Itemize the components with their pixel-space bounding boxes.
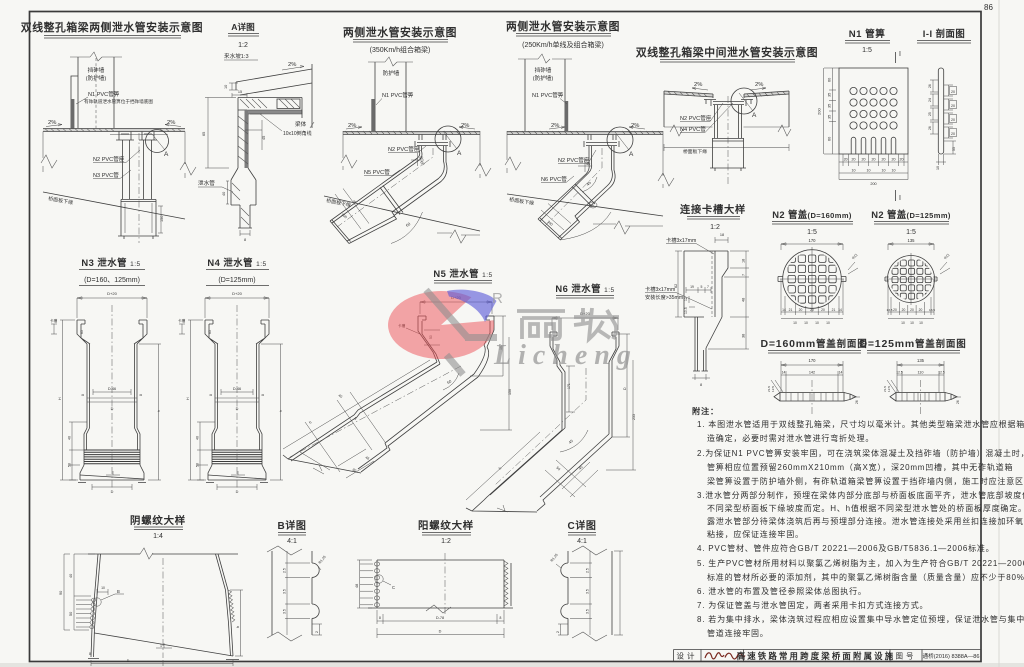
svg-text:40: 40: [68, 436, 72, 440]
svg-text:170: 170: [809, 358, 817, 363]
svg-text:管箅相应位置预留260mmX210mm（高X宽），深20mm: 管箅相应位置预留260mmX210mm（高X宽），深20mm凹槽，其中无砟轨道箱: [707, 462, 1013, 472]
svg-text:A: A: [457, 150, 462, 157]
svg-text:2: 2: [556, 631, 560, 633]
svg-text:卡槽: 卡槽: [50, 318, 58, 323]
svg-text:1:2: 1:2: [238, 42, 248, 49]
svg-text:13.5: 13.5: [886, 308, 892, 312]
svg-text:10: 10: [936, 166, 940, 170]
svg-text:D: D: [439, 630, 442, 634]
svg-text:90: 90: [59, 591, 63, 595]
svg-text:20: 20: [882, 158, 886, 162]
svg-text:1:2: 1:2: [710, 224, 720, 231]
svg-text:6. 泄水管的布置及管径参照梁体总图执行。: 6. 泄水管的布置及管径参照梁体总图执行。: [697, 586, 867, 596]
svg-text:3.5: 3.5: [586, 609, 590, 614]
svg-text:38: 38: [742, 334, 746, 338]
svg-text:8: 8: [244, 238, 246, 242]
svg-text:110: 110: [917, 371, 923, 375]
svg-text:N6 PVC管: N6 PVC管: [541, 175, 567, 183]
svg-text:N2 PVC管座: N2 PVC管座: [388, 145, 420, 153]
svg-text:21: 21: [832, 308, 836, 312]
svg-text:N2 管盖(D=125mm): N2 管盖(D=125mm): [871, 209, 951, 220]
svg-text:8. 若为集中排水，梁体浇筑过程应相应设置集中导水管定位预埋: 8. 若为集中排水，梁体浇筑过程应相应设置集中导水管定位预埋，保证泄水管与集中导…: [697, 614, 1024, 624]
svg-text:卡槽3x17mm: 卡槽3x17mm: [645, 285, 675, 293]
svg-text:D: D: [127, 659, 130, 663]
svg-text:8: 8: [89, 652, 91, 656]
svg-text:卡槽: 卡槽: [178, 318, 186, 323]
svg-text:135: 135: [908, 238, 916, 243]
svg-text:20: 20: [799, 308, 803, 312]
svg-text:10: 10: [901, 321, 905, 325]
svg-text:1:4: 1:4: [153, 533, 163, 540]
svg-text:(防护墙): (防护墙): [533, 74, 554, 82]
svg-text:20: 20: [910, 308, 914, 312]
svg-text:(D=160、125mm): (D=160、125mm): [84, 277, 140, 284]
svg-text:40: 40: [586, 162, 590, 166]
svg-text:13.5: 13.5: [929, 308, 935, 312]
svg-text:C详图: C详图: [567, 519, 596, 532]
svg-text:D: D: [236, 490, 239, 494]
svg-text:粘接，应保证连接牢固。: 粘接，应保证连接牢固。: [707, 529, 804, 539]
svg-text:40: 40: [69, 574, 73, 578]
svg-text:H: H: [58, 397, 62, 400]
svg-text:50: 50: [196, 463, 200, 467]
svg-text:(350Km/h组合箱梁): (350Km/h组合箱梁): [370, 45, 431, 54]
svg-text:D+20: D+20: [232, 291, 242, 296]
svg-text:21: 21: [789, 308, 793, 312]
svg-text:4:1: 4:1: [287, 538, 297, 545]
svg-text:142: 142: [809, 371, 815, 375]
svg-text:10: 10: [867, 169, 871, 173]
svg-text:2.为保证N1 PVC管箅安装牢固，可在浇筑梁体混凝土及挡砟: 2.为保证N1 PVC管箅安装牢固，可在浇筑梁体混凝土及挡砟墙（防护墙）混凝土时…: [697, 448, 1024, 458]
svg-text:2.5: 2.5: [283, 568, 287, 573]
svg-text:8: 8: [209, 394, 213, 396]
svg-text:20: 20: [902, 308, 906, 312]
svg-text:3.5: 3.5: [283, 589, 287, 594]
svg-text:D: D: [623, 387, 627, 390]
svg-text:10: 10: [882, 169, 886, 173]
svg-text:10.5: 10.5: [684, 307, 688, 314]
svg-text:40: 40: [196, 436, 200, 440]
svg-text:14: 14: [782, 371, 786, 375]
svg-text:19: 19: [690, 285, 694, 289]
svg-text:10: 10: [590, 204, 594, 208]
svg-text:150: 150: [508, 389, 512, 395]
svg-text:4:1: 4:1: [577, 538, 587, 545]
svg-text:(250Km/h单线及组合箱梁): (250Km/h单线及组合箱梁): [522, 40, 604, 49]
svg-text:A: A: [752, 112, 757, 119]
svg-text:10: 10: [826, 321, 830, 325]
svg-text:8: 8: [81, 394, 85, 396]
svg-text:A: A: [629, 151, 634, 158]
svg-text:8: 8: [139, 394, 143, 396]
svg-text:管道连接牢固。: 管道连接牢固。: [707, 628, 769, 638]
svg-text:20: 20: [951, 132, 955, 136]
svg-text:20: 20: [892, 158, 896, 162]
svg-text:B详图: B详图: [277, 519, 306, 532]
svg-text:N4 PVC管: N4 PVC管: [680, 125, 706, 133]
svg-text:65: 65: [208, 330, 212, 334]
svg-text:20: 20: [919, 308, 923, 312]
svg-text:20: 20: [951, 90, 955, 94]
svg-text:D=160mm管盖剖面图: D=160mm管盖剖面图: [760, 338, 867, 350]
svg-text:60: 60: [828, 78, 832, 82]
svg-text:48: 48: [355, 584, 359, 588]
svg-text:20: 20: [951, 104, 955, 108]
svg-text:N1 管箅: N1 管箅: [849, 28, 886, 40]
svg-text:2%: 2%: [48, 120, 56, 126]
svg-text:10: 10: [852, 169, 856, 173]
svg-text:26: 26: [855, 400, 859, 404]
svg-text:N1 PVC管箅: N1 PVC管箅: [532, 91, 564, 99]
svg-text:A详图: A详图: [231, 21, 255, 32]
svg-text:安装长度>35mm: 安装长度>35mm: [645, 293, 683, 301]
svg-text:露泄水管部分待梁体浇筑后再与预埋部分连接。泄水管连接处采用丝: 露泄水管部分待梁体浇筑后再与预埋部分连接。泄水管连接处采用丝扣连接加环氧树脂: [707, 516, 1024, 526]
svg-text:A: A: [164, 151, 169, 158]
svg-text:170: 170: [809, 238, 817, 243]
svg-text:I-I 剖面图: I-I 剖面图: [923, 28, 966, 39]
svg-text:R: R: [492, 290, 503, 307]
svg-text:B: B: [117, 589, 120, 594]
svg-text:65: 65: [80, 330, 84, 334]
svg-text:20: 20: [893, 308, 897, 312]
svg-text:55: 55: [952, 147, 956, 151]
svg-text:200: 200: [817, 108, 822, 115]
svg-text:50: 50: [69, 612, 73, 616]
svg-text:卡槽3x17mm: 卡槽3x17mm: [666, 236, 696, 244]
svg-text:10: 10: [224, 85, 228, 89]
svg-text:连接卡槽大样: 连接卡槽大样: [680, 203, 746, 216]
svg-text:2%: 2%: [288, 62, 296, 68]
svg-text:5: 5: [701, 285, 703, 289]
svg-text:两侧泄水管安装示意图: 两侧泄水管安装示意图: [506, 19, 620, 33]
svg-text:N2 PVC管座: N2 PVC管座: [93, 155, 125, 163]
svg-text:D+20: D+20: [107, 291, 117, 296]
svg-text:Licheng: Licheng: [493, 340, 638, 371]
svg-text:梁体: 梁体: [295, 120, 307, 128]
svg-text:桥面板下缘: 桥面板下缘: [683, 148, 707, 155]
svg-text:20: 20: [852, 158, 856, 162]
svg-text:50: 50: [68, 463, 72, 467]
svg-text:10: 10: [804, 321, 808, 325]
svg-text:20: 20: [810, 308, 814, 312]
svg-text:D: D: [111, 490, 114, 494]
svg-text:20: 20: [872, 158, 876, 162]
svg-text:N2 管盖(D=160mm): N2 管盖(D=160mm): [772, 209, 852, 220]
svg-text:8: 8: [700, 383, 702, 387]
svg-text:14: 14: [782, 308, 786, 312]
svg-text:10: 10: [910, 321, 914, 325]
svg-text:阴螺纹大样: 阴螺纹大样: [130, 514, 186, 527]
svg-text:D=125mm管盖剖面图: D=125mm管盖剖面图: [859, 338, 966, 350]
svg-text:12.5: 12.5: [771, 386, 775, 392]
svg-text:135: 135: [917, 358, 925, 363]
svg-text:通桥(2016) 8388A—86: 通桥(2016) 8388A—86: [923, 652, 980, 660]
svg-text:18: 18: [742, 259, 746, 263]
svg-text:12.5: 12.5: [896, 371, 902, 375]
svg-text:(D=125mm): (D=125mm): [218, 277, 255, 284]
svg-text:h: h: [157, 410, 161, 412]
svg-text:D-78: D-78: [436, 616, 444, 620]
svg-text:挡砟墙: 挡砟墙: [88, 66, 105, 74]
svg-text:20: 20: [821, 308, 825, 312]
svg-text:双线整孔箱梁两侧泄水管安装示意图: 双线整孔箱梁两侧泄水管安装示意图: [21, 20, 203, 34]
svg-text:附注：: 附注：: [692, 406, 719, 416]
svg-text:I: I: [899, 51, 901, 58]
svg-text:1:5: 1:5: [906, 229, 916, 236]
svg-text:15: 15: [238, 90, 242, 94]
svg-text:防护墙: 防护墙: [383, 69, 400, 77]
svg-text:7. 为保证管盖与泄水管固定，两者采用卡扣方式连接方式。: 7. 为保证管盖与泄水管固定，两者采用卡扣方式连接方式。: [697, 600, 928, 610]
svg-text:C: C: [392, 585, 395, 590]
svg-text:233: 233: [632, 414, 636, 420]
svg-text:H: H: [186, 397, 190, 400]
svg-text:10: 10: [793, 321, 797, 325]
svg-text:1:5: 1:5: [807, 229, 817, 236]
svg-text:3.泄水管分两部分制作，预埋在梁体内部分底部与桥面板底面平齐: 3.泄水管分两部分制作，预埋在梁体内部分底部与桥面板底面平齐，泄水管底部坡度依据: [697, 490, 1024, 500]
svg-text:N5 PVC管: N5 PVC管: [364, 168, 390, 176]
svg-text:10: 10: [101, 586, 105, 590]
svg-text:26: 26: [928, 84, 932, 88]
svg-text:N2 PVC管座: N2 PVC管座: [680, 114, 712, 122]
svg-text:200: 200: [870, 182, 876, 186]
svg-text:1:2: 1:2: [441, 538, 451, 545]
svg-text:26: 26: [956, 400, 960, 404]
svg-text:150: 150: [160, 216, 164, 222]
svg-text:来水坡1:3: 来水坡1:3: [224, 52, 249, 60]
svg-text:20: 20: [844, 158, 848, 162]
svg-text:2.5: 2.5: [586, 568, 590, 573]
svg-text:h: h: [236, 626, 240, 628]
svg-text:(防护墙): (防护墙): [86, 74, 107, 82]
svg-text:10x10倒角线: 10x10倒角线: [283, 130, 312, 137]
svg-text:10: 10: [815, 321, 819, 325]
svg-text:26: 26: [928, 126, 932, 130]
svg-text:3.5: 3.5: [586, 589, 590, 594]
svg-text:18: 18: [720, 233, 724, 237]
svg-text:标准的管材所必要的添加剂，其中的聚氯乙烯树脂含量（质量含量）: 标准的管材所必要的添加剂，其中的聚氯乙烯树脂含量（质量含量）应不少于80%．: [707, 572, 1024, 582]
svg-text:4. PVC管材、管件应符合GB/T 20221—2006及: 4. PVC管材、管件应符合GB/T 20221—2006及GB/T5836.1…: [697, 543, 994, 553]
svg-text:20: 20: [862, 158, 866, 162]
svg-text:45: 45: [262, 136, 266, 140]
svg-text:40: 40: [222, 192, 226, 196]
svg-text:3.5: 3.5: [283, 609, 287, 614]
svg-text:1. 本图泄水管适用于双线整孔箱梁，尺寸均以毫米计。其他类型: 1. 本图泄水管适用于双线整孔箱梁，尺寸均以毫米计。其他类型箱梁泄水管应根据箱梁…: [697, 419, 1024, 429]
svg-text:8: 8: [500, 616, 502, 620]
svg-text:35: 35: [828, 93, 832, 97]
svg-text:泄水管: 泄水管: [198, 179, 215, 187]
svg-text:挡砟墙: 挡砟墙: [535, 66, 552, 74]
svg-text:5. 生产PVC管材所用材料以聚氯乙烯树脂为主，加入为生产符: 5. 生产PVC管材所用材料以聚氯乙烯树脂为主，加入为生产符合GB/T 2022…: [697, 558, 1024, 568]
svg-text:h: h: [279, 410, 283, 412]
svg-text:12.5: 12.5: [938, 371, 944, 375]
svg-text:1: 1: [160, 644, 162, 648]
svg-text:N1 PVC管箅: N1 PVC管箅: [382, 91, 414, 99]
svg-text:65: 65: [202, 132, 206, 136]
svg-text:2: 2: [315, 631, 319, 633]
svg-text:20: 20: [951, 118, 955, 122]
svg-text:有砟轨道泄水管箅位于挡砟墙底图: 有砟轨道泄水管箅位于挡砟墙底图: [84, 98, 153, 105]
svg-text:35: 35: [828, 115, 832, 119]
svg-text:高速铁路常用跨度梁桥面附属设施: 高速铁路常用跨度梁桥面附属设施: [737, 651, 896, 661]
svg-text:10: 10: [919, 321, 923, 325]
svg-text:8: 8: [379, 616, 381, 620]
svg-text:梁管箅设置于防护墙外侧，有砟轨道箱梁管箅设置于挡砟墙内侧，施: 梁管箅设置于防护墙外侧，有砟轨道箱梁管箅设置于挡砟墙内侧，施工时应注意区分。: [707, 476, 1024, 486]
svg-text:7: 7: [707, 285, 709, 289]
svg-text:60: 60: [828, 137, 832, 141]
svg-text:20: 20: [900, 158, 904, 162]
svg-text:25: 25: [928, 112, 932, 116]
svg-text:48: 48: [742, 298, 746, 302]
svg-text:N1 PVC管箅: N1 PVC管箅: [88, 90, 120, 98]
svg-text:1:5: 1:5: [862, 47, 872, 54]
svg-text:10: 10: [892, 169, 896, 173]
svg-text:N3 PVC管: N3 PVC管: [93, 171, 119, 179]
svg-text:12.5: 12.5: [887, 386, 891, 392]
svg-text:14: 14: [838, 308, 842, 312]
svg-text:8: 8: [261, 394, 265, 396]
svg-text:设计: 设计: [677, 651, 698, 661]
svg-text:40: 40: [419, 156, 423, 160]
svg-text:14: 14: [839, 371, 843, 375]
svg-text:7: 7: [742, 274, 746, 276]
svg-text:造确定，必要时需对泄水管进行弯折处理。: 造确定，必要时需对泄水管进行弯折处理。: [707, 433, 874, 443]
svg-text:两侧泄水管安装示意图: 两侧泄水管安装示意图: [343, 25, 457, 39]
svg-text:图号: 图号: [896, 652, 917, 661]
svg-text:35: 35: [828, 104, 832, 108]
svg-text:双线整孔箱梁中间泄水管安装示意图: 双线整孔箱梁中间泄水管安装示意图: [636, 45, 818, 59]
svg-text:阳螺纹大样: 阳螺纹大样: [418, 519, 474, 532]
svg-text:86: 86: [984, 3, 993, 12]
svg-text:24: 24: [928, 98, 932, 102]
svg-text:不同梁型桥面板下缘坡度而定。H、h值根据不同梁型泄水管处的桥: 不同梁型桥面板下缘坡度而定。H、h值根据不同梁型泄水管处的桥面板厚度确定。外: [707, 503, 1024, 513]
svg-text:I: I: [899, 195, 901, 202]
